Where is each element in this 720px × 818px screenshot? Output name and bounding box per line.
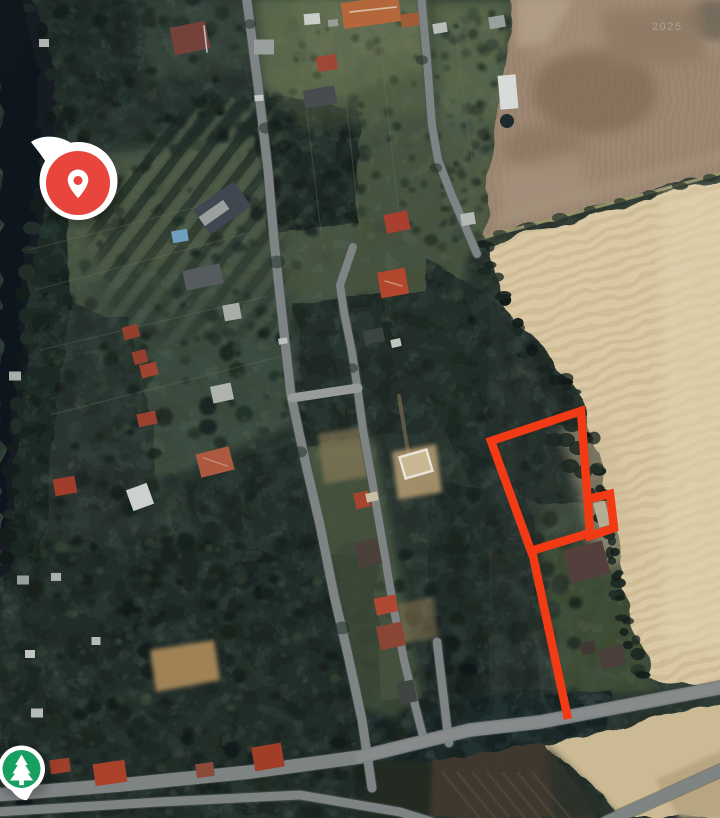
svg-text:2025: 2025 (652, 21, 682, 33)
